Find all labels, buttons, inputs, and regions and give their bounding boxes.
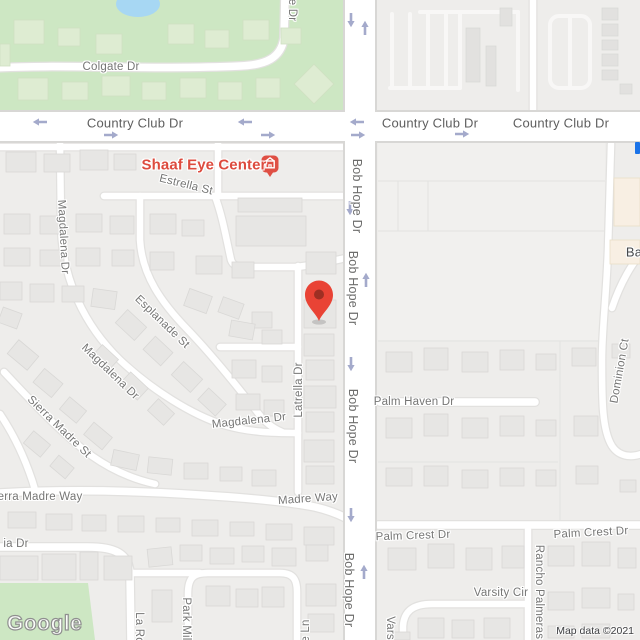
commercial-buildings [610,178,640,264]
road-bob-hope-dr [345,0,375,640]
empty-parcel [378,142,605,340]
blue-marker-fragment-icon [635,142,640,154]
map-attribution: Map data ©2021 [556,625,634,637]
map-graphics [0,0,640,640]
road-country-club-dr [0,112,640,141]
map-canvas[interactable]: Colgate Dr e Dr Country Club Dr Country … [0,0,640,640]
google-logo[interactable]: Google [7,612,82,636]
